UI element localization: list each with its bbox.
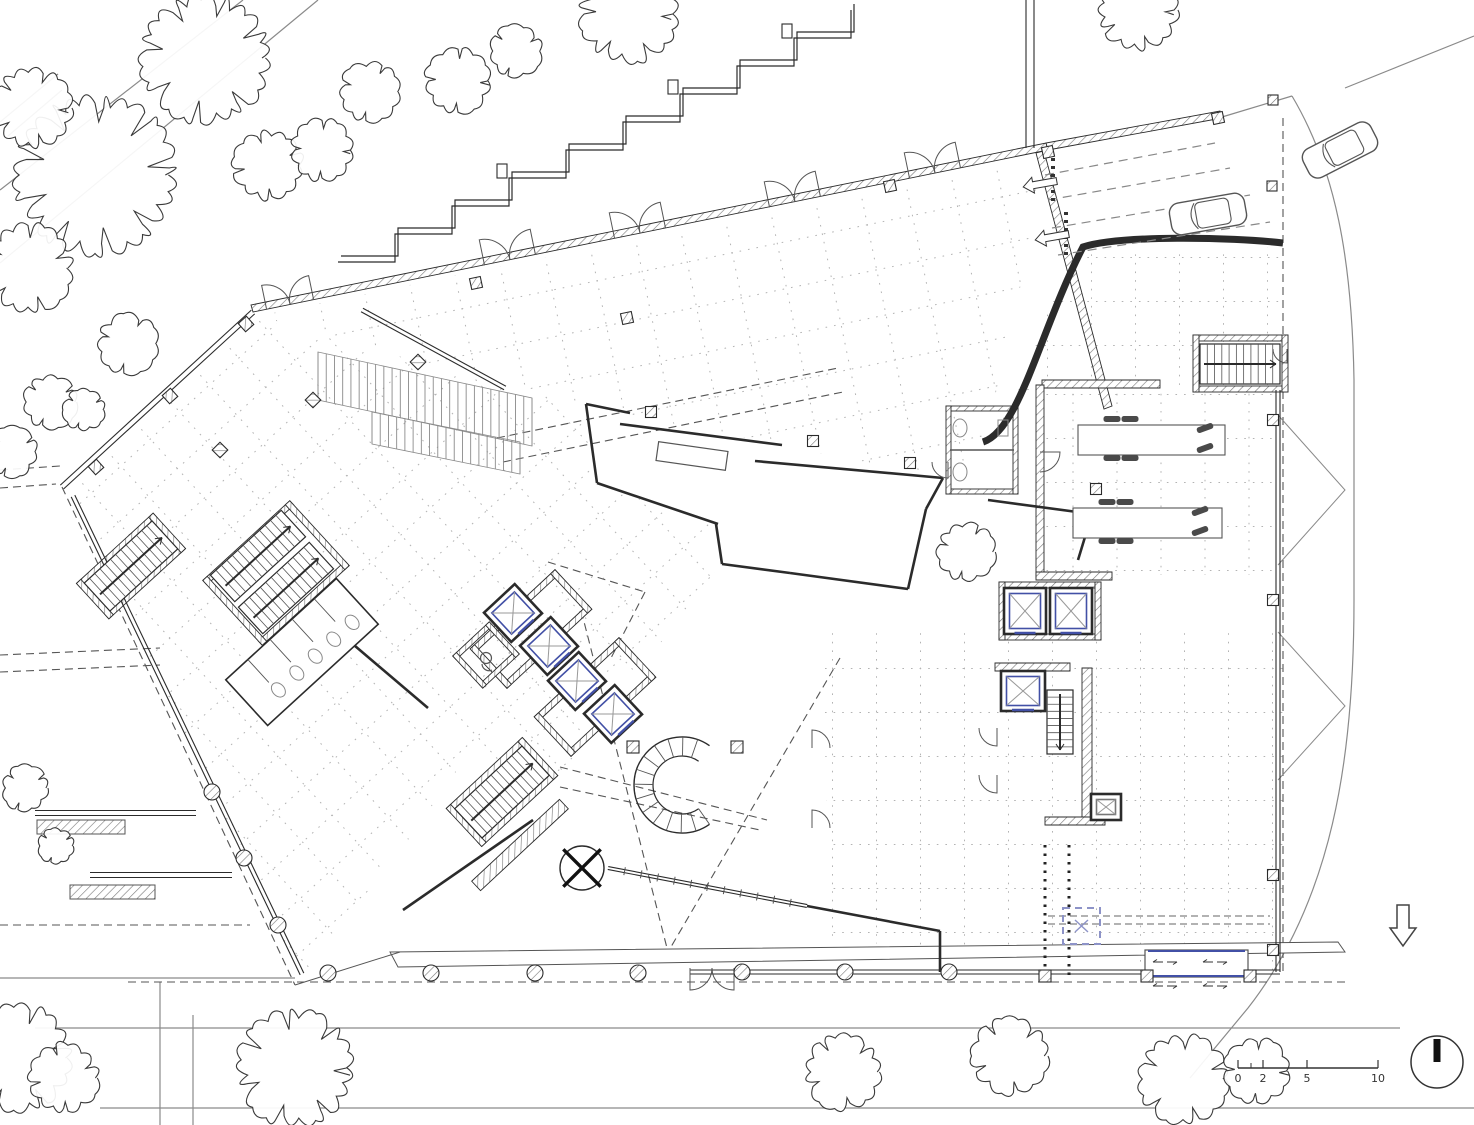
car [1168, 192, 1248, 237]
pivot-glass-swings [1278, 415, 1345, 780]
door [979, 728, 997, 746]
scale-label: 2 [1260, 1072, 1267, 1085]
tree [291, 118, 353, 181]
tree [0, 425, 37, 478]
north-indicator [1411, 1036, 1463, 1088]
bench [70, 885, 155, 899]
column-square [1091, 484, 1102, 495]
column-round [527, 965, 543, 981]
elevator [1001, 671, 1045, 711]
column-square [808, 436, 819, 447]
tree [38, 828, 74, 864]
elevator [1004, 588, 1046, 634]
column-round [270, 917, 286, 933]
door [812, 810, 830, 828]
elevator [1050, 588, 1092, 634]
chair [1122, 455, 1139, 461]
scale-label: 0 [1235, 1072, 1242, 1085]
tree [340, 62, 400, 124]
column-square [162, 388, 178, 404]
column-square [88, 459, 104, 475]
column-square [212, 442, 228, 458]
tree [936, 522, 996, 581]
column-round [837, 964, 853, 980]
tree [806, 1033, 882, 1112]
tree [490, 24, 542, 78]
column-square [1268, 595, 1279, 606]
reception-desk [656, 442, 728, 471]
sliding-gate [1145, 950, 1248, 989]
column-round [236, 850, 252, 866]
glass-wall-ticked [608, 867, 808, 908]
column-circle-x [560, 846, 604, 890]
column-square [1268, 945, 1279, 956]
tree [97, 312, 158, 375]
tree [579, 0, 679, 64]
circular-stair [634, 737, 710, 833]
garage-ramp [1022, 143, 1270, 977]
column-square [731, 741, 743, 753]
floor-plan-drawing: 02510 [0, 0, 1474, 1125]
column-round [734, 964, 750, 980]
column-square [1268, 415, 1279, 426]
column-square [469, 276, 482, 289]
column-square [1211, 111, 1224, 124]
tree [424, 48, 490, 115]
entry-stair-bands [318, 352, 532, 474]
tree [1098, 0, 1179, 51]
cars [1168, 118, 1381, 236]
chair [1099, 499, 1116, 505]
north-needle [1434, 1039, 1441, 1062]
column-round [941, 964, 957, 980]
tree [236, 1009, 353, 1125]
car [1299, 118, 1381, 181]
column-round [320, 965, 336, 981]
chair [1104, 455, 1121, 461]
column-square [1041, 145, 1054, 158]
column-square [883, 179, 896, 192]
column-square [410, 354, 426, 370]
doors [262, 142, 1287, 990]
column-square [905, 458, 916, 469]
column-square [1268, 95, 1278, 105]
column-square [646, 407, 657, 418]
chair [1104, 416, 1121, 422]
chair [1122, 416, 1139, 422]
chair [1117, 499, 1134, 505]
tree [0, 223, 73, 313]
column-square [1268, 870, 1279, 881]
door [979, 775, 997, 793]
column-square [238, 316, 254, 332]
column-square [620, 311, 633, 324]
door [812, 730, 830, 748]
stair [1200, 344, 1280, 384]
column-square [1267, 181, 1277, 191]
scale-label: 5 [1304, 1072, 1311, 1085]
floor-grid [58, 0, 1246, 910]
column-square [1039, 970, 1051, 982]
down-arrow-icon [1390, 905, 1416, 946]
column-round [204, 784, 220, 800]
column-square [1141, 970, 1153, 982]
column-square [1244, 970, 1256, 982]
zigzag-retaining-wall [338, 4, 854, 262]
tree [1224, 1038, 1290, 1104]
chair [1117, 538, 1134, 544]
elevator [1091, 794, 1121, 820]
scale-label: 10 [1371, 1072, 1385, 1085]
double-door [690, 968, 734, 990]
column-square [627, 741, 639, 753]
stair [1047, 690, 1073, 754]
tree [138, 0, 270, 125]
chair [1099, 538, 1116, 544]
column-round [423, 965, 439, 981]
floor-grid [701, 449, 1405, 1125]
site-plan-canvas: 02510 [0, 0, 1474, 1125]
tree [3, 764, 49, 812]
column-round [630, 965, 646, 981]
